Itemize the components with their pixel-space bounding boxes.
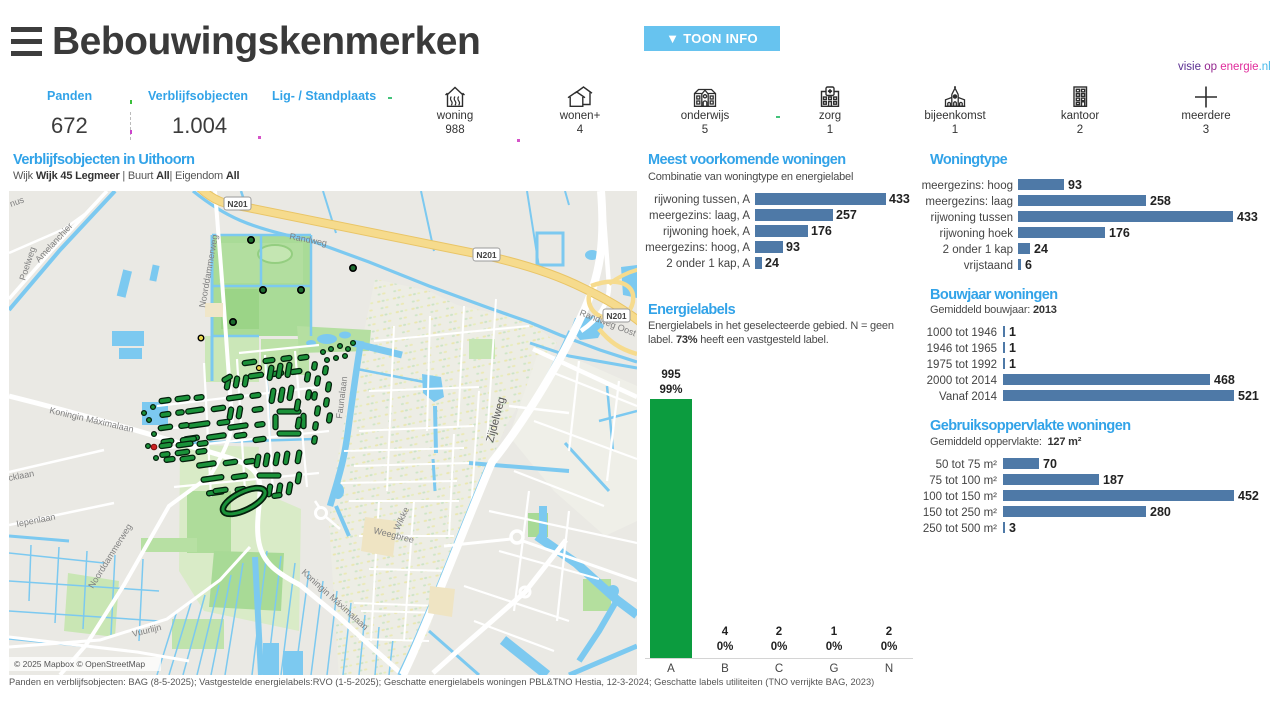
svg-text:N201: N201 <box>606 311 627 321</box>
svg-text:N201: N201 <box>476 250 497 260</box>
svg-text:© 2025 Mapbox © OpenStreetMap: © 2025 Mapbox © OpenStreetMap <box>14 659 145 669</box>
svg-text:N201: N201 <box>227 199 248 209</box>
